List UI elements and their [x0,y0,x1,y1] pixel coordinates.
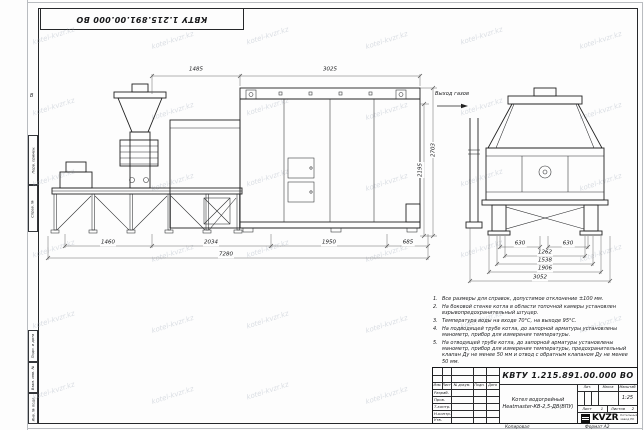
front-view-details [51,90,417,233]
dim-label-side-630-left: 630 [514,241,527,247]
kvzr-logo-subtext: Котельный завод РК [620,414,638,421]
dim-label-side-1538: 1538 [537,258,553,264]
dimension-lines [46,74,612,283]
dim-label-bottom-total: 7280 [218,252,234,258]
note-item: 1.Все размеры для справок, допустимое от… [433,296,635,302]
gas-outlet-arrow [437,104,468,108]
kvzr-logo-icon [581,414,590,423]
note-item: 5.На отводящей трубе котла, до запорной … [433,340,635,365]
tb-sheets-value: 2 [629,405,637,412]
side-view [466,88,608,235]
dim-label-bottom-4: 685 [402,240,415,246]
tb-lit-label: Лит. [577,384,598,391]
title-designation: КВТУ 1.215.891.00.000 ВО [499,368,637,384]
note-item: 4.На подводящей трубе котла, до запорной… [433,326,635,339]
dim-label-top-left: 1485 [188,67,204,73]
note-item: 3.Температура воды на входе 70°С, на вых… [433,318,635,324]
tb-doc-name: Котел водогрейный Heatmaster-КВ-2,5-ДВ(В… [499,384,577,423]
dim-label-side-630-right: 630 [562,241,575,247]
tb-row-ncontrol: Н.контр. [433,410,452,417]
tb-doc-name-line1: Котел водогрейный [512,398,565,403]
notes-block: 1.Все размеры для справок, допустимое от… [433,296,635,366]
tb-scale-label: Масштаб [618,384,637,391]
dim-label-top-right: 3025 [322,67,338,73]
dim-label-bottom-3: 1950 [321,240,337,246]
tb-sheets-label: Листов [607,405,629,412]
tb-sheet-label: Лист [577,405,597,412]
tb-mass-label: Масса [598,384,618,391]
tb-col-docnum: № докум. [451,382,473,389]
dim-label-side-1906: 1906 [537,266,553,272]
dim-label-right-inner: 2195 [418,162,424,178]
drawing-sheet: kotel-kvzr.kzkotel-kvzr.kzkotel-kvzr.kzk… [0,0,644,430]
dim-label-bottom-2: 2034 [203,240,219,246]
kvzr-logo-text: KVZR [592,413,618,423]
dim-label-bottom-1: 1460 [100,240,116,246]
tb-col-izm: Изм. [433,382,442,389]
tb-scale-value: 1:25 [618,391,637,405]
tb-sheet-value: 1 [597,405,607,412]
tb-col-list: Лист [442,382,451,389]
front-view [52,84,420,228]
tb-row-approved: Утв. [433,417,452,423]
tb-row-developed: Разраб. [433,389,452,396]
dim-label-side-1262: 1262 [537,250,553,256]
tb-col-date: Дата [486,382,499,389]
note-item: 2.На боковой стенке котла в области топо… [433,304,635,317]
tb-row-tcontrol: Т.контр. [433,403,452,410]
gas-outlet-label: Выход газов [435,91,469,97]
title-block: КВТУ 1.215.891.00.000 ВО Изм. Лист № док… [432,367,638,424]
tb-doc-name-line2: Heatmaster-КВ-2,5-ДВ(ВПУ) [502,405,573,410]
tb-row-checked: Пров. [433,396,452,403]
dim-label-side-total: 3052 [532,275,548,281]
dim-label-right-outer: 2703 [431,142,437,158]
company-logo: KVZR Котельный завод РК [581,413,638,423]
tb-col-sign: Подп. [473,382,486,389]
